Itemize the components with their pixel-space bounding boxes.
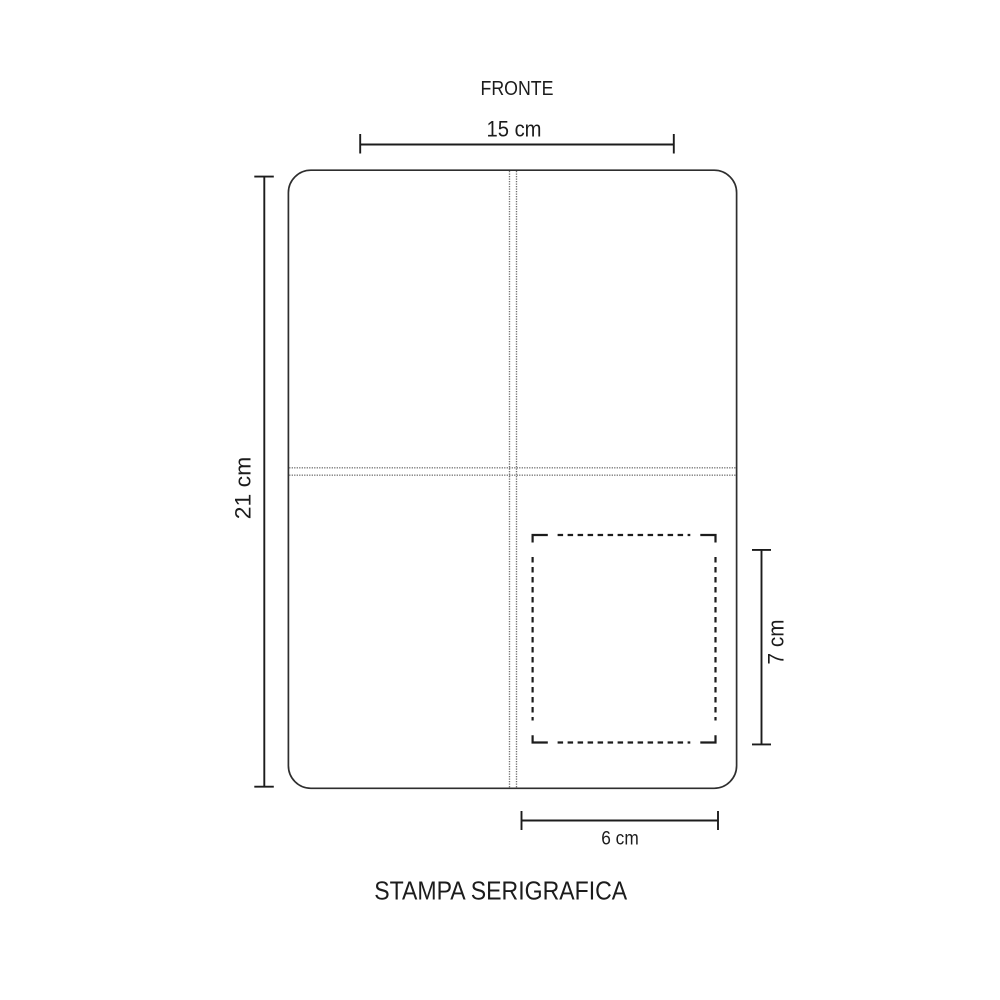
svg-text:FRONTE: FRONTE [481,78,554,100]
svg-text:15 cm: 15 cm [487,117,542,142]
svg-text:STAMPA SERIGRAFICA: STAMPA SERIGRAFICA [374,876,628,906]
svg-text:21 cm: 21 cm [231,457,256,520]
svg-text:6 cm: 6 cm [601,827,639,849]
svg-text:7 cm: 7 cm [764,620,789,665]
